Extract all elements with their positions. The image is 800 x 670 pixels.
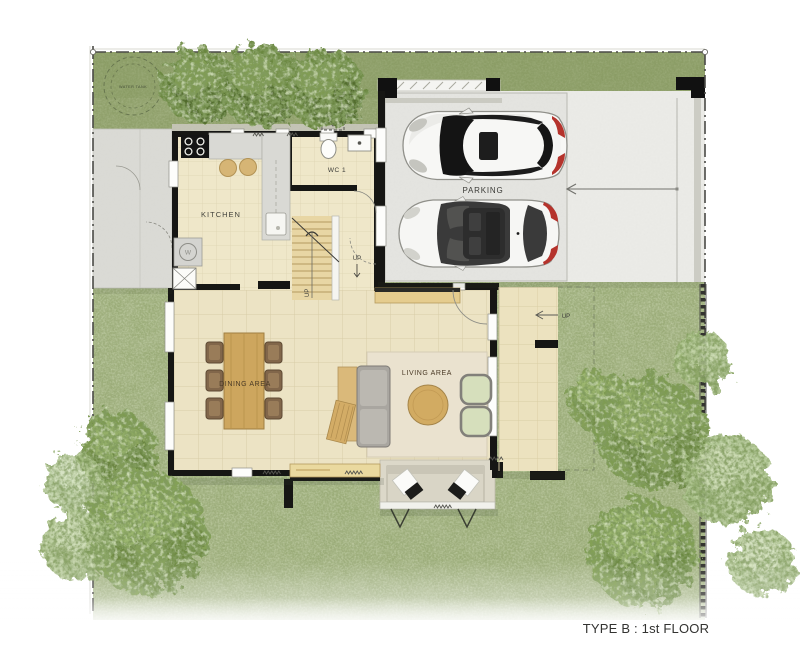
svg-text:WC 1: WC 1 (328, 167, 346, 174)
svg-text:LIVING AREA: LIVING AREA (402, 370, 452, 377)
svg-text:DINING AREA: DINING AREA (219, 381, 271, 388)
svg-text:W: W (185, 250, 192, 257)
svg-text:UP: UP (353, 256, 361, 262)
svg-text:WATER TANK: WATER TANK (119, 85, 147, 89)
svg-text:PARKING: PARKING (462, 186, 503, 195)
svg-text:UP: UP (305, 289, 311, 297)
svg-text:UP: UP (562, 314, 570, 320)
svg-text:TYPE B : 1st FLOOR: TYPE B : 1st FLOOR (583, 621, 709, 636)
svg-text:KITCHEN: KITCHEN (201, 210, 241, 219)
